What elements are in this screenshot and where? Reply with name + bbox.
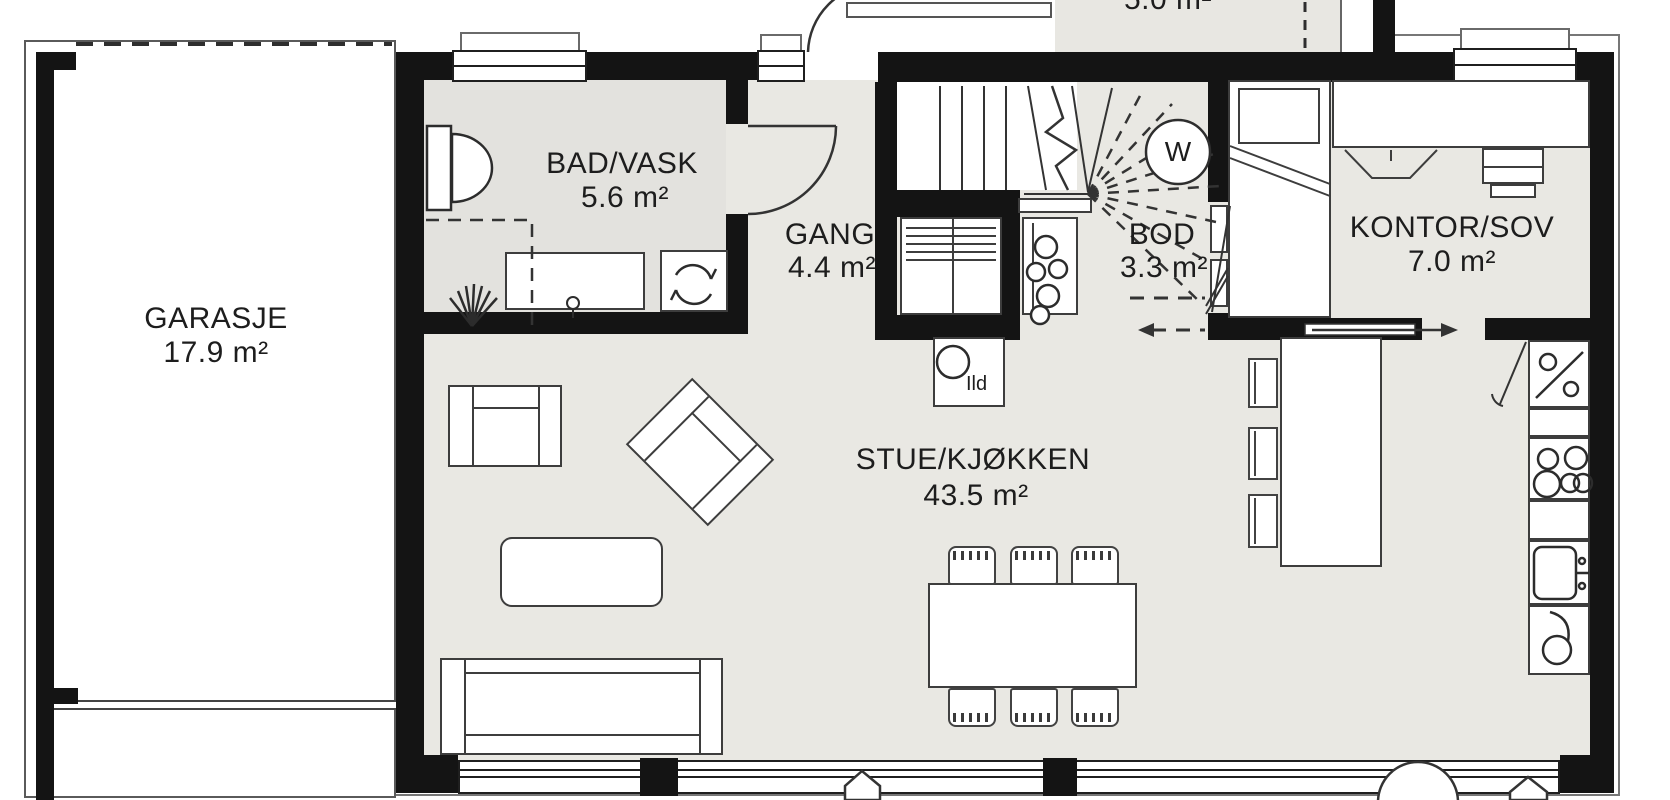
armchair-1: [448, 385, 562, 467]
stair-floor: [897, 82, 1077, 190]
dining-chair-4: [948, 688, 996, 727]
top-wall-c: [878, 52, 1395, 82]
kitchen-top-wall: [1485, 318, 1614, 340]
desk-drawer-small: [1490, 184, 1536, 198]
tech-cabinet: [1022, 217, 1078, 315]
room-label-kontor: KONTOR/SOV: [1350, 212, 1554, 244]
outline-bottom: [396, 794, 1620, 796]
room-area-bad: 5.6 m²: [581, 182, 669, 214]
kitchen-island: [1280, 337, 1382, 567]
fireplace-label: Ild: [966, 373, 987, 396]
kitchen-cabinet-dishwasher: [1528, 340, 1590, 408]
porch-edge-line: [1340, 0, 1342, 52]
desk: [1332, 80, 1590, 148]
right-wall: [1590, 52, 1614, 790]
room-label-gang: GANG: [785, 219, 875, 251]
bath-right-wall-upper: [726, 52, 748, 124]
room-area-stue: 43.5 m²: [923, 480, 1028, 512]
bed-pillow: [1238, 88, 1320, 144]
bod-door-panel-1: [1210, 205, 1228, 253]
dining-chair-5: [1010, 688, 1058, 727]
bar-stool-2: [1248, 427, 1278, 480]
window-sill-1: [460, 32, 580, 52]
top-wall-d: [1395, 52, 1453, 82]
room-label-bad: BAD/VASK: [546, 148, 698, 180]
kitchen-sink-unit: [1528, 540, 1590, 605]
window-sill-3: [1460, 28, 1570, 50]
coffee-table: [500, 537, 663, 607]
bar-stool-3: [1248, 494, 1278, 548]
window-bath: [452, 50, 587, 82]
room-label-garasje: GARASJE: [144, 303, 288, 335]
floor-plan: Ild: [0, 0, 1670, 800]
dining-chair-1: [948, 546, 996, 585]
vanity-counter: [505, 252, 645, 310]
desk-drawer: [1482, 148, 1544, 184]
bod-door-panel-2: [1210, 259, 1228, 307]
dining-chair-2: [1010, 546, 1058, 585]
dining-chair-3: [1071, 546, 1119, 585]
house-left-wall: [396, 52, 424, 762]
porch-railing: [846, 2, 1052, 18]
top-wall-a: [396, 52, 454, 80]
top-stub: [1373, 0, 1395, 52]
washing-machine: [660, 250, 728, 312]
room-label-stue: STUE/KJØKKEN: [856, 444, 1090, 476]
garage-outline: [24, 40, 396, 798]
fireplace: [933, 337, 1005, 407]
landing-step: [1018, 198, 1092, 213]
room-area-kontor: 7.0 m²: [1408, 246, 1496, 278]
garage-bottom-corner: [36, 688, 78, 704]
stair-under-wall: [897, 190, 1020, 217]
stair-w-label: W: [1165, 136, 1191, 168]
kitchen-cooktop: [1528, 437, 1590, 500]
window-kontor: [1453, 48, 1577, 82]
window-mullion-2: [1043, 758, 1077, 796]
outline-right: [1618, 34, 1620, 794]
window-mullion-1: [640, 758, 678, 796]
garage-door-line: [54, 700, 396, 710]
bath-bottom-wall: [396, 312, 748, 334]
closet-divider: [1002, 217, 1020, 315]
stair-left-wall: [875, 82, 897, 318]
garage-top-corner: [36, 52, 76, 70]
window-gang: [757, 50, 805, 82]
bottom-left-corner: [396, 755, 458, 793]
bath-right-wall-lower: [726, 214, 748, 334]
sofa: [440, 658, 723, 755]
bar-stool-1: [1248, 358, 1278, 408]
bottom-right-corner: [1560, 755, 1614, 793]
room-area-terrasse: 5.0 m²: [1124, 0, 1212, 16]
room-area-gang: 4.4 m²: [788, 252, 876, 284]
dining-table: [928, 583, 1137, 688]
room-area-bod: 3.3 m²: [1120, 252, 1208, 284]
kitchen-counter-1: [1528, 408, 1590, 437]
window-band-south: [458, 760, 1560, 794]
kitchen-oven-unit: [1528, 605, 1590, 675]
wardrobe: [900, 217, 1002, 315]
dining-chair-6: [1071, 688, 1119, 727]
room-label-bod: BOD: [1129, 219, 1196, 251]
room-area-garasje: 17.9 m²: [163, 337, 268, 369]
kitchen-counter-2: [1528, 500, 1590, 540]
